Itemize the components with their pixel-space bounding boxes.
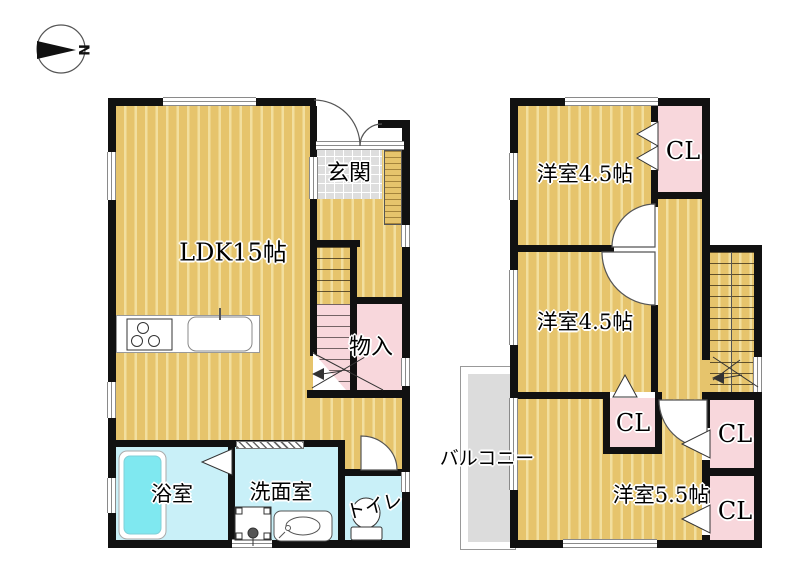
wall <box>350 297 402 304</box>
wall <box>702 392 762 400</box>
room-label-storage: 物入 <box>349 329 393 361</box>
wall <box>702 252 710 360</box>
wall <box>651 170 658 207</box>
room-label-bedroom-b: 洋室4.5帖 <box>537 306 633 336</box>
closet-label-2: CL <box>616 409 650 437</box>
floor2-stair-landing <box>702 360 710 392</box>
room-label-washroom: 洗面室 <box>250 476 313 506</box>
window <box>753 357 762 392</box>
wall <box>702 535 710 543</box>
room-label-bedroom-c: 洋室5.5帖 <box>613 479 709 509</box>
wall <box>350 247 357 300</box>
wall <box>310 199 317 356</box>
genkan-opening <box>309 157 318 199</box>
entrance-threshold <box>316 141 404 150</box>
wall <box>518 392 610 399</box>
floorplan-canvas: N <box>0 0 800 576</box>
closet-label-3: CL <box>718 420 752 448</box>
floor1-shoe-cabinet <box>384 150 402 225</box>
wall <box>228 447 235 540</box>
wall <box>345 469 402 476</box>
compass-icon: N <box>37 25 91 73</box>
window <box>565 97 658 106</box>
kitchen-counter <box>116 315 260 353</box>
window <box>401 472 410 492</box>
wall <box>338 440 345 540</box>
room-label-ldk: LDK15帖 <box>179 233 287 268</box>
window <box>107 152 116 200</box>
wall <box>702 468 762 476</box>
window <box>401 358 410 386</box>
room-label-bedroom-a: 洋室4.5帖 <box>537 158 633 188</box>
floor2-corridor-floor <box>658 199 702 400</box>
wall <box>603 447 662 454</box>
room-label-balcony: バルコニー <box>440 444 535 471</box>
wall <box>603 392 610 454</box>
floor1-stairs-upper <box>312 247 350 300</box>
window <box>401 225 410 247</box>
window <box>509 270 518 345</box>
wall <box>651 305 658 392</box>
wall <box>702 400 710 428</box>
window <box>107 478 116 513</box>
room-label-genkan: 玄関 <box>327 155 371 187</box>
closet-label-1: CL <box>666 137 700 165</box>
wall <box>702 245 762 252</box>
room-label-bath: 浴室 <box>151 478 193 508</box>
wall <box>651 192 710 199</box>
compass-north-label: N <box>75 44 91 56</box>
floor2-stairs <box>710 252 754 392</box>
floor1-stairs-lower <box>312 304 350 390</box>
wall <box>307 390 402 398</box>
wall <box>116 440 340 447</box>
wall <box>702 98 710 252</box>
wall <box>651 106 658 122</box>
washroom-sliding-door <box>236 441 304 449</box>
wall <box>655 392 662 454</box>
window <box>163 97 256 106</box>
window <box>563 539 657 548</box>
window <box>107 382 116 418</box>
floor1-stair-entry <box>310 356 317 390</box>
closet-label-4: CL <box>718 497 752 525</box>
wall <box>518 245 614 252</box>
wall <box>310 240 360 247</box>
window <box>232 539 272 548</box>
entrance-door-arc <box>314 100 382 146</box>
window <box>509 153 518 200</box>
